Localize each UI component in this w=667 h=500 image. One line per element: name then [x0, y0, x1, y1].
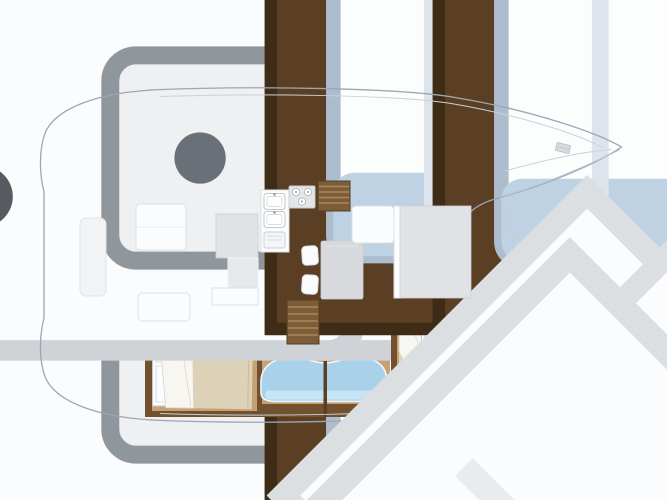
galley-sink-2 [264, 211, 285, 227]
chair [301, 274, 318, 294]
stove-burners [289, 186, 315, 208]
chair [301, 245, 318, 265]
chaise-seat [352, 206, 394, 243]
floor-plan-canvas [0, 0, 667, 500]
side-locker [212, 288, 258, 305]
lounge-bench [228, 258, 258, 290]
catamaran-floor-plan [0, 0, 667, 500]
cockpit-bench-starboard [138, 293, 190, 321]
transom-bench [80, 218, 106, 296]
sofa-daybed [400, 206, 471, 298]
companionway-steps-port [318, 181, 350, 211]
lounge-seat [216, 214, 258, 258]
companionway-steps-starboard [287, 300, 319, 344]
dining-table [321, 241, 363, 299]
galley-sink [264, 193, 285, 209]
